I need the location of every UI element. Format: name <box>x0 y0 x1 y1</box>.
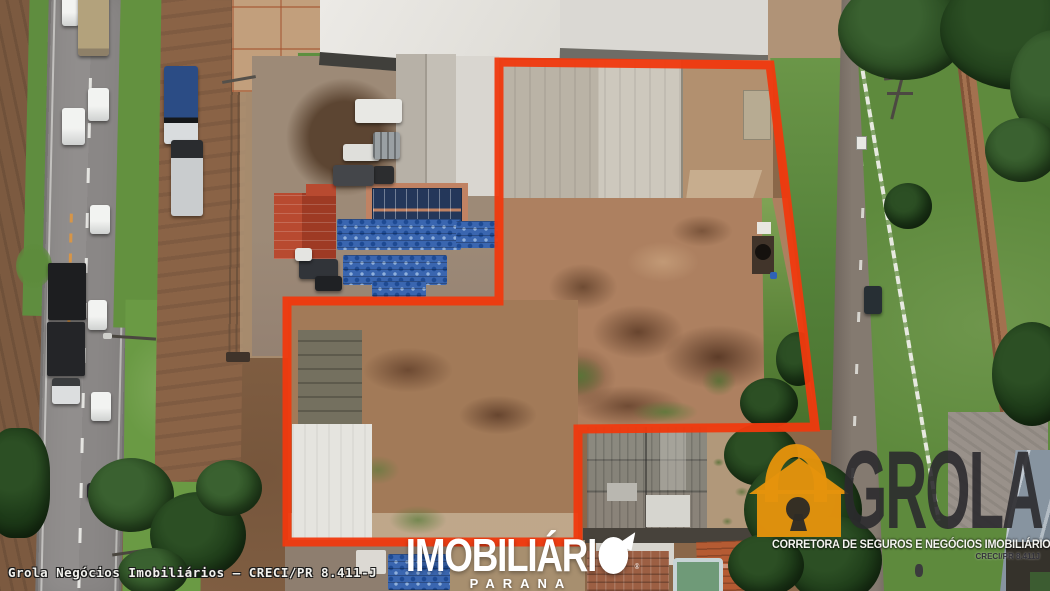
rail-object <box>226 352 250 362</box>
vehicle-white-car <box>91 392 111 421</box>
bush <box>884 183 932 229</box>
vehicle-dark-box-truck <box>333 165 374 186</box>
vehicle-truck-trailer <box>78 0 109 56</box>
imobiliario-logo-text: IMOBILIÁRI <box>406 532 596 578</box>
vehicle-blue-tarp-truck <box>164 66 198 144</box>
blue-barrel-stack <box>456 221 498 248</box>
gray-gable-roof <box>396 54 456 196</box>
imobiliario-logo-row: IMOBILIÁRI ® <box>406 532 628 578</box>
vehicle-truck-cab <box>52 378 80 404</box>
tree-canopy <box>985 118 1050 182</box>
imobiliario-logo: IMOBILIÁRI ® PARANA <box>352 532 682 591</box>
vehicle-black-car <box>315 276 342 291</box>
vehicle-white-car <box>88 300 107 330</box>
small-shed <box>743 90 771 140</box>
blue-barrel-stack <box>337 219 461 250</box>
blue-object <box>770 272 777 279</box>
property-warehouse-roof <box>499 60 683 205</box>
vehicle-black-trailer <box>47 322 85 376</box>
white-patio <box>607 483 637 501</box>
disc-flag-icon: ® <box>599 537 629 574</box>
vehicle-dark-car <box>864 286 882 314</box>
aerial-photo: Grola Negócios Imobiliários — CRECI/PR 8… <box>0 0 1050 591</box>
white-warehouse-roof-top <box>320 0 568 58</box>
light-roof-section <box>456 56 499 196</box>
vehicle-white-box-truck <box>355 99 402 123</box>
white-patio <box>646 495 690 527</box>
vehicle-black-trailer <box>48 263 86 320</box>
vehicle-tank-truck <box>171 140 203 216</box>
road-sign <box>856 136 867 150</box>
grass-corner <box>1030 572 1050 591</box>
grass-patch <box>16 244 52 288</box>
registered-mark: ® <box>635 562 640 571</box>
grola-logo-text: GROLA <box>842 446 1042 536</box>
tree-canopy <box>196 460 262 516</box>
blue-barrel-stack <box>372 281 426 297</box>
dirt-entry-north <box>768 0 848 62</box>
vehicle-white-car <box>62 108 85 145</box>
vehicle-white-van <box>62 0 79 26</box>
streetlight-head <box>103 333 112 339</box>
roof-skylight <box>660 432 686 490</box>
white-box <box>757 222 771 234</box>
white-roof-north <box>560 0 776 55</box>
vehicle-white-car <box>90 205 110 234</box>
vehicle-white-small <box>295 248 312 261</box>
red-tile-roof-wing <box>306 184 336 196</box>
pedestrian <box>915 564 923 577</box>
vehicle-crane-truck <box>373 132 400 159</box>
gray-roof-building-south <box>298 330 362 426</box>
bush <box>740 378 798 428</box>
grola-creci-number: CRECI/PR 8.411J <box>955 552 1040 561</box>
vehicle-white-car <box>88 88 109 121</box>
tree-canopy <box>0 428 50 538</box>
grola-tagline: CORRETORA DE SEGUROS E NEGÓCIOS IMOBILIÁ… <box>772 537 1042 551</box>
water-tank <box>755 244 771 260</box>
vehicle-black-pickup <box>373 166 394 184</box>
pole-crossarm <box>887 92 913 95</box>
agency-caption: Grola Negócios Imobiliários — CRECI/PR 8… <box>8 565 377 580</box>
